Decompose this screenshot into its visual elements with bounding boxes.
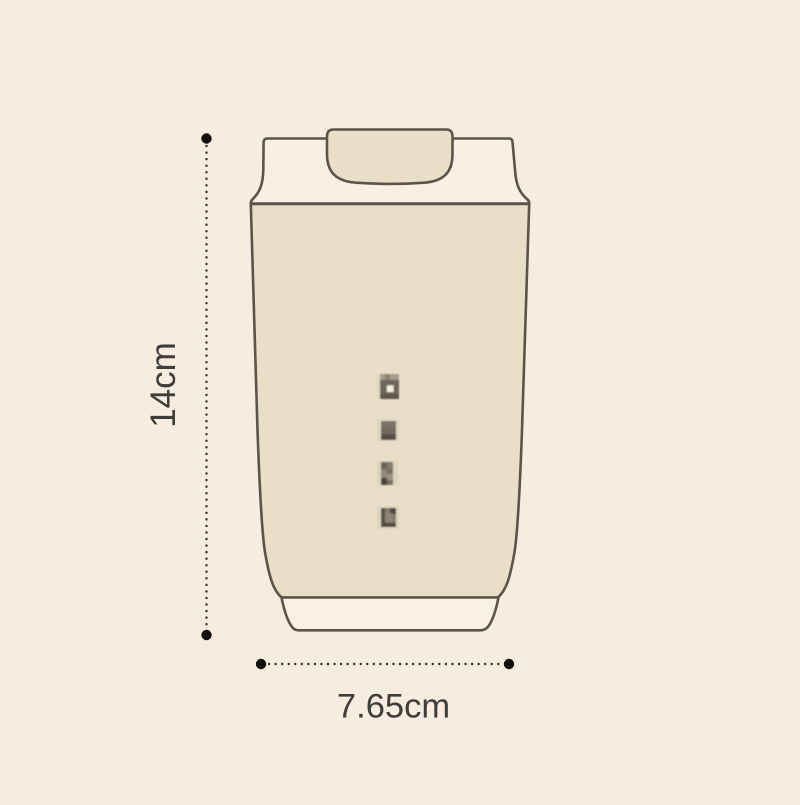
- svg-text:14cm: 14cm: [144, 342, 183, 428]
- svg-text:7.65cm: 7.65cm: [337, 688, 450, 726]
